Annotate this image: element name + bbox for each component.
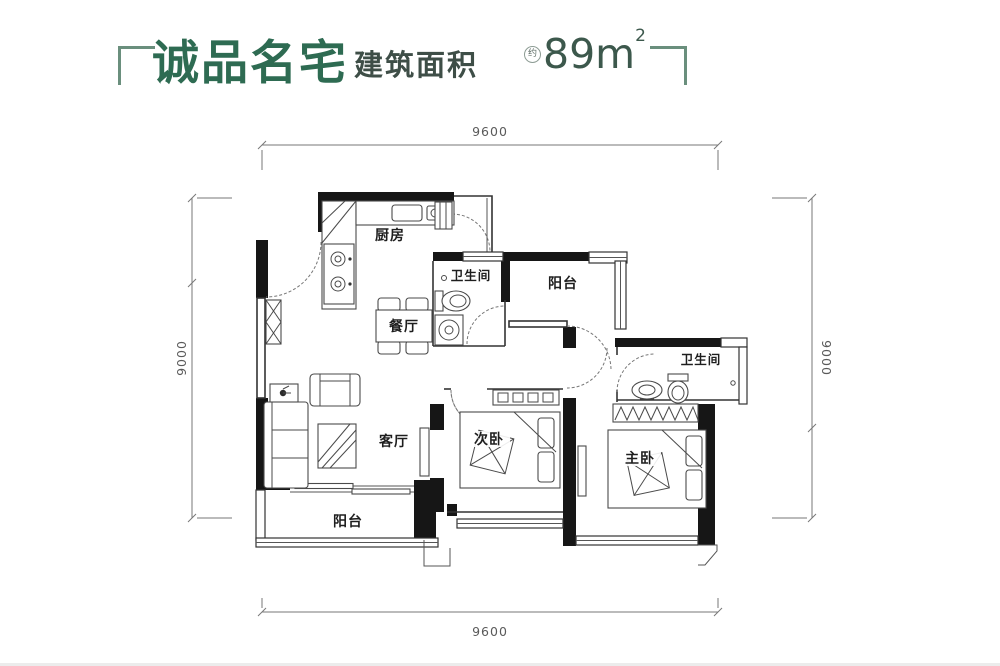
- room-label-dining: 餐厅: [388, 318, 419, 335]
- dimension-bottom-label: 9600: [472, 624, 508, 639]
- room-label-balcony-top: 阳台: [548, 275, 578, 292]
- entry-cabinet: [266, 300, 281, 344]
- room-label-living: 客厅: [378, 433, 409, 450]
- floor-plan-drawing: 9600 9600 9000 9000: [0, 0, 1000, 666]
- living-room-furniture: [264, 374, 429, 488]
- room-label-kitchen: 厨房: [375, 227, 405, 244]
- bathroom2-fixtures: [632, 374, 735, 403]
- room-label-bedroom2: 次卧: [474, 431, 504, 448]
- dimension-top-label: 9600: [472, 124, 508, 139]
- room-label-balcony-bottom: 阳台: [333, 513, 363, 530]
- room-label-master: 主卧: [625, 450, 655, 467]
- dimension-right-label: 9000: [819, 340, 834, 376]
- room-label-bathroom2: 卫生间: [681, 352, 722, 367]
- dimension-left-label: 9000: [174, 340, 189, 376]
- bathroom1-fixtures: [435, 276, 470, 346]
- room-label-bathroom1: 卫生间: [451, 268, 492, 283]
- floorplan-page: { "header": { "title": "诚品名宅", "area_lab…: [0, 0, 1000, 666]
